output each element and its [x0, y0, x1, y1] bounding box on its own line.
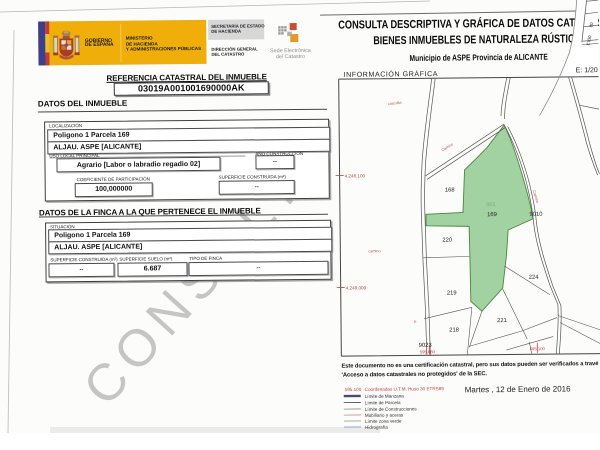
svg-text:Límite zona verde: Límite zona verde [365, 419, 402, 424]
svg-text:220: 220 [442, 238, 452, 244]
svg-text:221: 221 [497, 318, 507, 324]
svg-text:224: 224 [529, 275, 540, 281]
svg-text:E: 1/20: E: 1/20 [576, 67, 598, 74]
svg-text:Camino: Camino [532, 190, 540, 204]
svg-text:001: 001 [486, 202, 495, 208]
svg-text:Coordenadas U.T.M. Huso 30 ETR: Coordenadas U.T.M. Huso 30 ETRS89 [365, 386, 445, 392]
svg-text:Límite de Construcciones: Límite de Construcciones [365, 406, 418, 412]
svg-text:168: 168 [445, 188, 455, 194]
svg-text:Límite de Parcela: Límite de Parcela [365, 400, 401, 405]
svg-text:Límite de Manzana: Límite de Manzana [365, 394, 405, 399]
svg-text:219: 219 [447, 291, 457, 297]
svg-text:9023: 9023 [419, 343, 432, 349]
svg-text:695.100: 695.100 [530, 346, 546, 351]
svg-text:e: e [414, 319, 417, 324]
svg-text:4.248.100: 4.248.100 [345, 173, 366, 178]
svg-text:Mobiliario y aceras: Mobiliario y aceras [365, 413, 404, 418]
svg-text:4.248.000: 4.248.000 [346, 285, 367, 290]
svg-text:9010: 9010 [530, 212, 543, 218]
svg-text:595.080: 595.080 [420, 349, 436, 354]
svg-text:Hidrografía: Hidrografía [365, 425, 388, 430]
svg-text:218: 218 [449, 327, 459, 333]
svg-text:595.100: 595.100 [345, 387, 362, 392]
svg-text:Camino: Camino [441, 142, 454, 152]
svg-text:camino: camino [368, 249, 380, 253]
svg-text:169: 169 [487, 212, 497, 218]
